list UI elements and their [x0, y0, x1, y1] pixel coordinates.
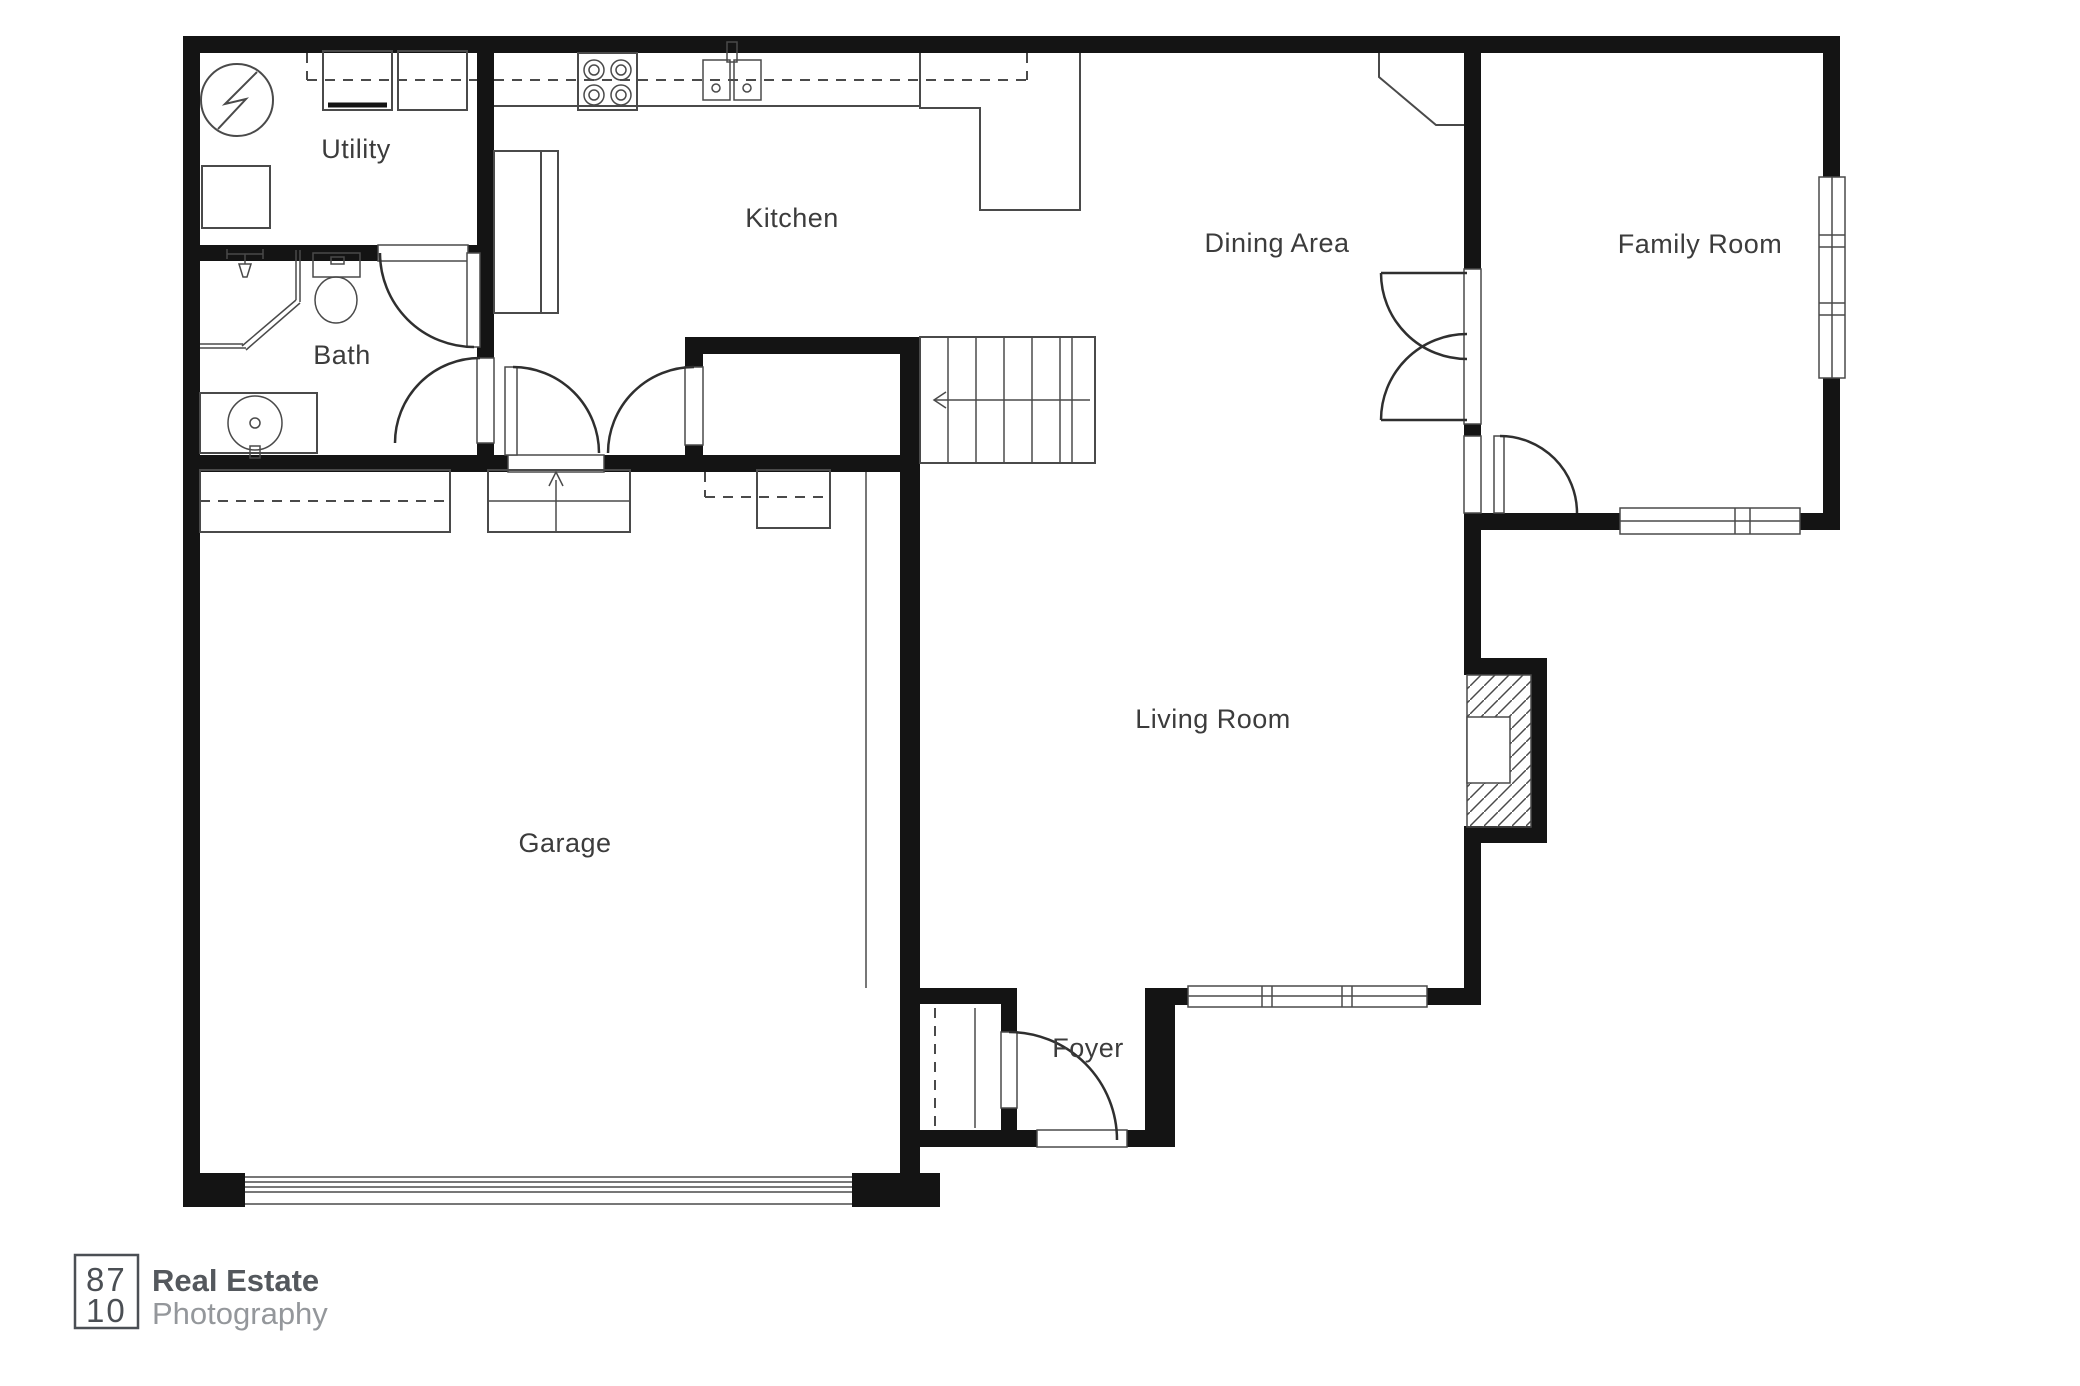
utility-counter: [202, 166, 270, 228]
utility-bath-door-leaf: [467, 253, 480, 347]
windows-living-bottom: [1188, 986, 1427, 1007]
garage-door: [245, 1173, 852, 1207]
fireplace-hatched: [1467, 675, 1531, 827]
kitchen-peninsula: [920, 53, 1080, 210]
garage-shelf: [757, 470, 830, 528]
water-heater: [201, 64, 273, 136]
windows-family-bottom: [1620, 508, 1800, 534]
pantry-door-arc: [608, 367, 694, 453]
hall-bath-door-arc: [395, 358, 480, 443]
garage-entry-door-arc: [513, 367, 599, 453]
toilet: [313, 253, 360, 323]
logo-subtitle: Photography: [152, 1296, 328, 1331]
room-labels: Utility Kitchen Dining Area Family Room …: [313, 134, 1782, 1063]
corner-cabinet: [1379, 53, 1464, 125]
door-jambs: [378, 245, 1481, 1147]
room-label-utility: Utility: [321, 134, 391, 164]
logo-title: Real Estate: [152, 1263, 319, 1298]
stove-burners: [578, 53, 637, 110]
room-label-garage: Garage: [518, 828, 611, 858]
garage-entry-door-leaf: [505, 367, 517, 455]
family-door-arc: [1500, 436, 1577, 513]
room-label-dining: Dining Area: [1204, 228, 1350, 258]
family-door-leaf: [1494, 436, 1504, 513]
firebox: [1467, 717, 1510, 783]
room-label-foyer: Foyer: [1052, 1033, 1124, 1063]
room-label-living: Living Room: [1135, 704, 1291, 734]
utility-bath-door-arc: [380, 253, 474, 347]
windows-family-right: [1819, 177, 1845, 378]
shower: [200, 249, 300, 350]
kitchen-fixtures: [494, 42, 1464, 313]
logo-number-bottom: 10: [86, 1292, 127, 1329]
garage-entry-steps: [488, 470, 630, 532]
vanity-sink: [200, 393, 317, 458]
room-label-family: Family Room: [1618, 229, 1783, 259]
room-label-kitchen: Kitchen: [745, 203, 839, 233]
staircase: [920, 337, 1095, 463]
refrigerator: [494, 151, 558, 313]
floor-plan: Utility Kitchen Dining Area Family Room …: [0, 0, 2080, 1386]
coat-closet: [935, 1008, 975, 1128]
room-label-bath: Bath: [313, 340, 371, 370]
french-door-lower-arc: [1381, 334, 1467, 420]
brand-logo: 87 10 Real Estate Photography: [75, 1255, 328, 1331]
floor-plan-drawing: Utility Kitchen Dining Area Family Room …: [0, 0, 2080, 1386]
